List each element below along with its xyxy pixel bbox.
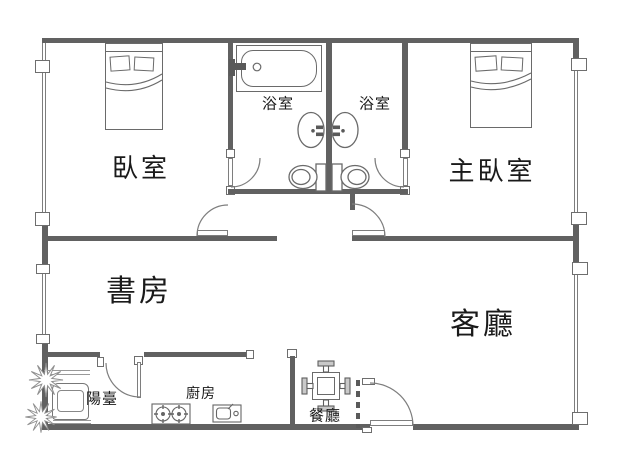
label-bathroom-left: 浴室 bbox=[262, 97, 294, 112]
pillow bbox=[134, 56, 155, 71]
washbasin-right bbox=[332, 113, 358, 148]
bathroom-right-door-leaf bbox=[403, 158, 408, 186]
balcony-counter-line bbox=[44, 370, 90, 371]
pillow bbox=[501, 56, 524, 71]
window-jamb bbox=[35, 212, 50, 226]
bathroom-left-door-arc bbox=[231, 158, 260, 187]
door-jamb bbox=[400, 149, 410, 158]
wall-stub-master-door bbox=[350, 194, 355, 210]
door-jamb bbox=[362, 427, 372, 433]
label-bedroom: 臥室 bbox=[112, 156, 170, 182]
kitchen-sink bbox=[213, 404, 241, 422]
wall-right-mid bbox=[573, 225, 579, 263]
wall-bathroom-east bbox=[402, 41, 408, 150]
wall-bottom-right bbox=[413, 424, 579, 430]
wall-bathroom-west bbox=[228, 41, 233, 150]
label-kitchen: 廚房 bbox=[186, 387, 216, 401]
window-right-upper bbox=[574, 71, 578, 213]
washing-machine-door bbox=[57, 390, 84, 412]
window-right-lower bbox=[574, 275, 578, 413]
wall-bottom-left bbox=[42, 424, 370, 430]
window-jamb bbox=[572, 262, 588, 275]
wall-kitchen-east bbox=[290, 356, 295, 429]
wall-end-cap bbox=[246, 350, 254, 359]
window-jamb bbox=[571, 58, 587, 71]
washbasin-left bbox=[298, 113, 324, 148]
label-bathroom-right: 浴室 bbox=[359, 97, 391, 112]
door-jamb bbox=[97, 357, 104, 367]
door-jamb bbox=[226, 149, 235, 158]
dining-divider-dashed bbox=[356, 380, 360, 428]
dining-table-inner bbox=[317, 377, 335, 395]
bedroom-door-leaf bbox=[197, 230, 228, 236]
bathroom-left-door-leaf bbox=[228, 158, 233, 186]
bathtub-inner bbox=[241, 50, 317, 87]
label-living-room: 客廳 bbox=[450, 310, 516, 340]
window-jamb bbox=[572, 412, 588, 425]
washer-base-line bbox=[53, 423, 91, 424]
wall-kitchen-north bbox=[144, 352, 250, 357]
bed-headboard-line bbox=[470, 51, 532, 52]
bathroom-right-door-arc bbox=[375, 158, 404, 187]
window-jamb bbox=[571, 212, 587, 225]
wall-bathroom-divider bbox=[326, 41, 332, 194]
washer-base-line bbox=[53, 420, 91, 421]
gas-stove bbox=[152, 404, 190, 424]
balcony-door-leaf bbox=[137, 362, 141, 398]
pillow bbox=[110, 55, 131, 71]
wall-bathroom-south bbox=[228, 189, 408, 194]
label-study: 書房 bbox=[106, 277, 172, 307]
toilet-left bbox=[289, 164, 326, 191]
label-balcony: 陽臺 bbox=[86, 392, 118, 407]
label-dining-room: 餐廳 bbox=[309, 409, 341, 424]
wall-middle-left bbox=[42, 236, 277, 241]
entry-door-leaf bbox=[370, 420, 413, 426]
door-end-cap bbox=[362, 378, 375, 385]
toilet-right bbox=[332, 164, 369, 191]
wall-left-mid bbox=[42, 226, 48, 264]
pillow bbox=[475, 55, 498, 71]
label-master-bedroom: 主臥室 bbox=[448, 159, 535, 185]
window-left-lower bbox=[42, 274, 46, 334]
window-jamb bbox=[36, 334, 50, 344]
bed-headboard-line bbox=[105, 51, 163, 52]
floor-plan: 臥室 主臥室 浴室 浴室 書房 客廳 陽臺 廚房 餐廳 bbox=[0, 0, 640, 461]
wall-balcony-north bbox=[42, 352, 100, 357]
master-bedroom-door-leaf bbox=[352, 230, 385, 236]
window-jamb bbox=[36, 264, 50, 274]
wall-right-top bbox=[573, 38, 579, 60]
balcony-counter-line bbox=[44, 374, 90, 375]
wall-middle-right bbox=[352, 236, 579, 241]
window-jamb bbox=[35, 60, 50, 73]
